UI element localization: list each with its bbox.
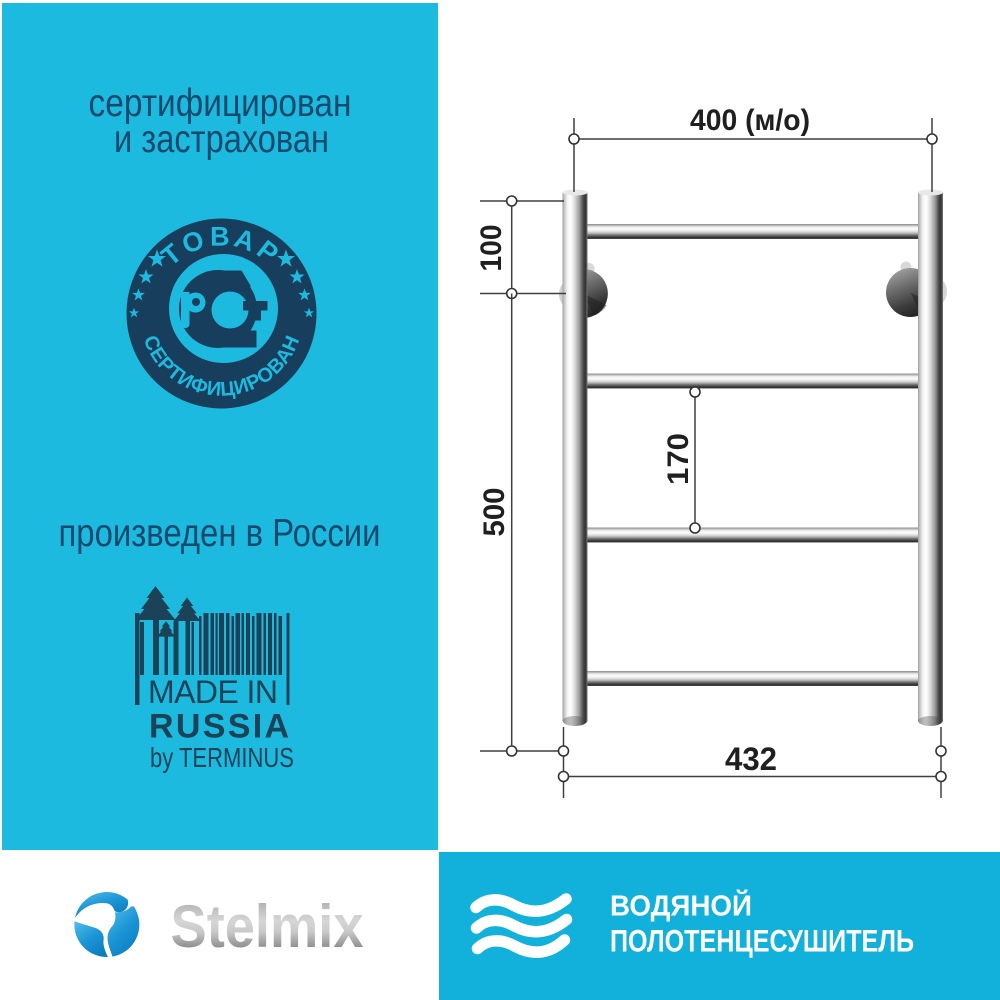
svg-text:170: 170 bbox=[662, 433, 695, 485]
svg-text:500: 500 bbox=[478, 488, 511, 537]
svg-text:ПОЛОТЕНЦЕСУШИТЕЛЬ: ПОЛОТЕНЦЕСУШИТЕЛЬ bbox=[610, 923, 914, 959]
svg-text:RUSSIA: RUSSIA bbox=[149, 708, 289, 746]
svg-text:by TERMINUS: by TERMINUS bbox=[150, 742, 294, 773]
svg-text:произведен в России: произведен в России bbox=[59, 512, 381, 555]
svg-text:ВОДЯНОЙ: ВОДЯНОЙ bbox=[610, 889, 752, 923]
svg-text:Stelmix: Stelmix bbox=[171, 893, 364, 960]
svg-text:MADE IN: MADE IN bbox=[148, 674, 278, 710]
svg-text:432: 432 bbox=[725, 741, 777, 777]
svg-text:и застрахован: и застрахован bbox=[114, 118, 329, 161]
svg-text:400 (м/о): 400 (м/о) bbox=[690, 104, 810, 137]
svg-text:100: 100 bbox=[475, 225, 508, 272]
